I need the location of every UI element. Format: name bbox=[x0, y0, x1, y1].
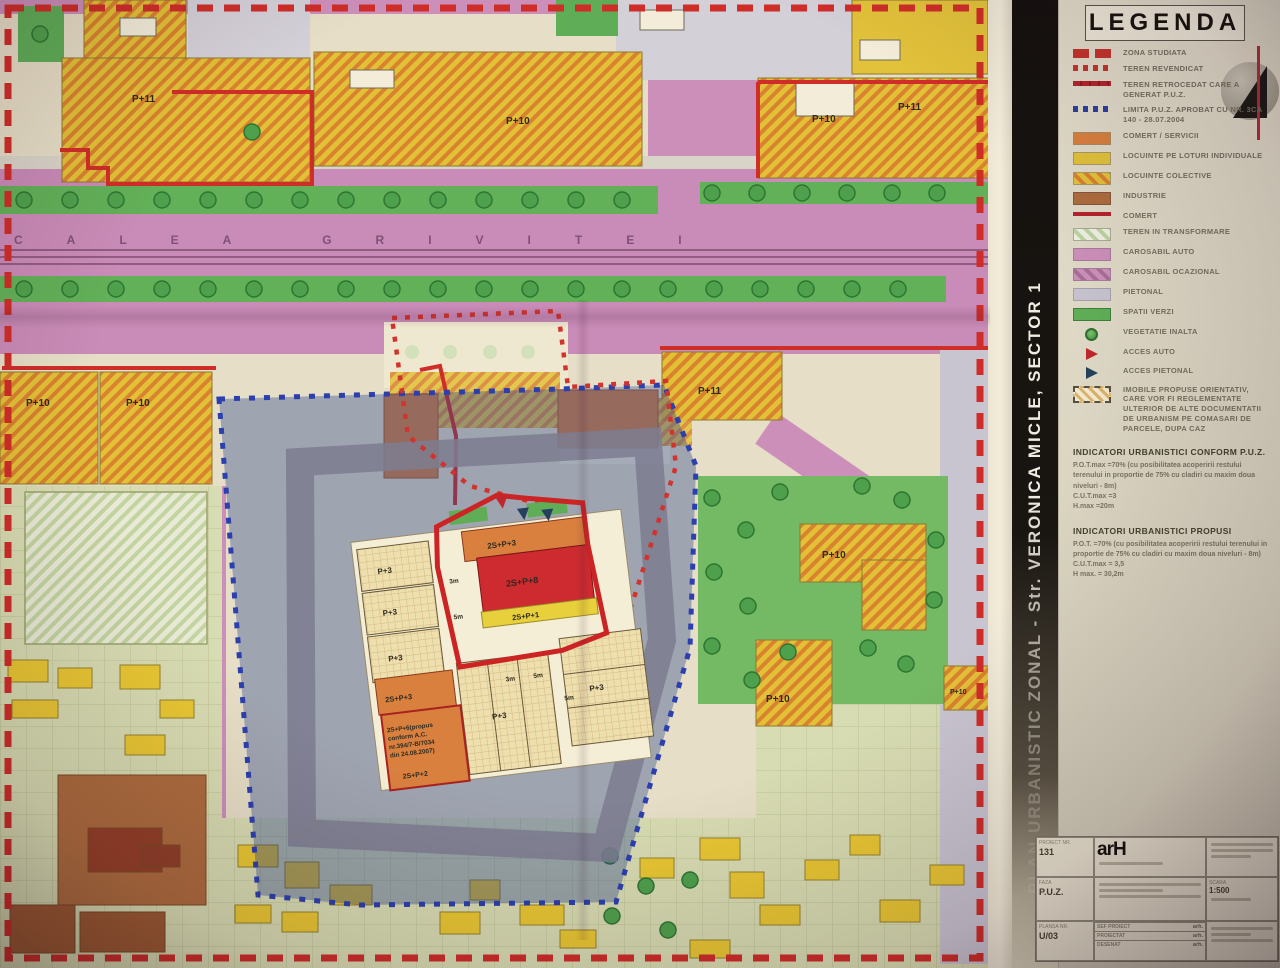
role-label: SEF PROIECT bbox=[1097, 924, 1130, 930]
building-annotation: 2S+P+6(propus conform A.C. nr.394/7-B/70… bbox=[387, 722, 439, 760]
legend-item-locuinte-colective: LOCUINTE COLECTIVE bbox=[1073, 171, 1269, 185]
legend-label: VEGETATIE INALTA bbox=[1123, 327, 1198, 337]
indicator-line: P.O.T.max =70% (cu posibilitatea acoperi… bbox=[1073, 461, 1269, 491]
indicator-line: H max. = 30,2m bbox=[1073, 570, 1269, 580]
role-label: PROIECTAT bbox=[1097, 933, 1125, 939]
indicators-existing-heading: INDICATORI URBANISTICI CONFORM P.U.Z. bbox=[1073, 447, 1269, 457]
swatch-teren-transformare-icon bbox=[1073, 228, 1113, 241]
legend-label: TEREN RETROCEDAT CARE A GENERAT P.U.Z. bbox=[1123, 80, 1269, 100]
swatch-imobile-propuse-icon bbox=[1073, 386, 1113, 403]
svg-text:P+10: P+10 bbox=[126, 398, 150, 409]
illegible-text bbox=[1211, 855, 1251, 858]
legend-items: ZONA STUDIATA TEREN REVENDICAT TEREN RET… bbox=[1073, 48, 1269, 581]
illegible-text bbox=[1099, 883, 1201, 886]
svg-text:P+10: P+10 bbox=[812, 114, 836, 125]
swatch-industrie-icon bbox=[1073, 192, 1113, 205]
legend-item-teren-transformare: TEREN IN TRANSFORMARE bbox=[1073, 227, 1269, 241]
legend-label: LOCUINTE COLECTIVE bbox=[1123, 171, 1212, 181]
firm-info-cell bbox=[1206, 837, 1278, 877]
role-name: arh. bbox=[1193, 924, 1203, 930]
swatch-spatii-verzi-icon bbox=[1073, 308, 1113, 321]
legend-item-comert: COMERT bbox=[1073, 211, 1269, 221]
legend-label: LIMITA P.U.Z. APROBAT CU NR. 3CA 140 - 2… bbox=[1123, 105, 1269, 125]
dimension-label: 5m bbox=[453, 613, 463, 621]
legend-item-carosabil-ocazional: CAROSABIL OCAZIONAL bbox=[1073, 267, 1269, 281]
plan-title: PLAN URBANISTIC ZONAL - Str. VERONICA MI… bbox=[1012, 0, 1058, 900]
role-name: arh. bbox=[1193, 942, 1203, 948]
zone-teren-in-transformare bbox=[25, 492, 207, 644]
paper-fold-strip bbox=[988, 0, 1012, 968]
indicators-proposed-heading: INDICATORI URBANISTICI PROPUSI bbox=[1073, 526, 1269, 536]
swatch-zona-studiata-icon bbox=[1073, 49, 1113, 58]
indicator-line: C.U.T.max = 3,5 bbox=[1073, 560, 1269, 570]
signature-row: DESENAT arh. bbox=[1095, 940, 1205, 949]
swatch-comert-servicii-icon bbox=[1073, 132, 1113, 145]
svg-text:P+10: P+10 bbox=[950, 689, 967, 696]
illegible-text bbox=[1211, 898, 1251, 901]
sheet-number-label: PLANSA NR. bbox=[1039, 924, 1091, 930]
signature-row: PROIECTAT arh. bbox=[1095, 931, 1205, 940]
street-name-label: CALEA GRIVITEI bbox=[14, 233, 726, 247]
signature-rows: SEF PROIECT arh. PROIECTAT arh. DESENAT … bbox=[1094, 921, 1206, 961]
illegible-text bbox=[1211, 843, 1273, 846]
sheet-number-cell: PLANSA NR. U/03 bbox=[1036, 921, 1094, 961]
legend-panel: LEGENDA ZONA STUDIATA TEREN REVENDICAT T… bbox=[1058, 0, 1280, 968]
legend-label: TEREN IN TRANSFORMARE bbox=[1123, 227, 1230, 237]
swatch-carosabil-ocazional-icon bbox=[1073, 268, 1113, 281]
scanned-urban-plan-photo: CALEA GRIVITEI bbox=[0, 0, 1280, 968]
parcel-label: P+3 bbox=[492, 711, 508, 722]
parcel-label: P+3 bbox=[589, 683, 605, 694]
legend-label: PIETONAL bbox=[1123, 287, 1163, 297]
swatch-teren-retrocedat-icon bbox=[1073, 81, 1113, 86]
legend-label: CAROSABIL AUTO bbox=[1123, 247, 1195, 257]
legend-item-comert-servicii: COMERT / SERVICII bbox=[1073, 131, 1269, 145]
parcel-label: P+3 bbox=[377, 566, 393, 577]
legend-item-zona-studiata: ZONA STUDIATA bbox=[1073, 48, 1269, 58]
indicator-line: P.O.T. =70% (cu posibilitatea acoperirii… bbox=[1073, 540, 1269, 560]
phase-label: FAZA bbox=[1039, 880, 1091, 886]
legend-label: ZONA STUDIATA bbox=[1123, 48, 1187, 58]
legend-item-carosabil-auto: CAROSABIL AUTO bbox=[1073, 247, 1269, 261]
firm-logo: arH bbox=[1097, 839, 1126, 860]
svg-text:P+10: P+10 bbox=[26, 398, 50, 409]
legend-label: IMOBILE PROPUSE ORIENTATIV, CARE VOR FI … bbox=[1123, 385, 1269, 434]
signature-row: SEF PROIECT arh. bbox=[1095, 922, 1205, 931]
svg-text:P+10: P+10 bbox=[506, 116, 530, 127]
legend-label: ACCES AUTO bbox=[1123, 347, 1175, 357]
map-drawing: CALEA GRIVITEI bbox=[0, 0, 990, 968]
legend-label: ACCES PIETONAL bbox=[1123, 366, 1193, 376]
swatch-teren-revendicat-icon bbox=[1073, 65, 1113, 71]
legend-item-locuinte-loturi: LOCUINTE PE LOTURI INDIVIDUALE bbox=[1073, 151, 1269, 165]
legend-label: LOCUINTE PE LOTURI INDIVIDUALE bbox=[1123, 151, 1262, 161]
sheet-number-value: U/03 bbox=[1039, 931, 1091, 941]
role-name: arh. bbox=[1193, 933, 1203, 939]
legend-item-teren-retrocedat: TEREN RETROCEDAT CARE A GENERAT P.U.Z. bbox=[1073, 80, 1269, 100]
swatch-comert-icon bbox=[1073, 212, 1113, 216]
legend-title: LEGENDA bbox=[1085, 5, 1245, 41]
indicator-line: H.max =20m bbox=[1073, 502, 1269, 512]
scale-value: 1:500 bbox=[1209, 886, 1275, 895]
legend-label: INDUSTRIE bbox=[1123, 191, 1166, 201]
svg-text:P+11: P+11 bbox=[898, 102, 922, 113]
swatch-locuinte-loturi-icon bbox=[1073, 152, 1113, 165]
illegible-text bbox=[1211, 849, 1273, 852]
phase-value: P.U.Z. bbox=[1039, 887, 1091, 897]
legend-item-imobile-propuse: IMOBILE PROPUSE ORIENTATIV, CARE VOR FI … bbox=[1073, 385, 1269, 434]
legend-item-vegetatie-inalta: VEGETATIE INALTA bbox=[1073, 327, 1269, 341]
legend-item-pietonal: PIETONAL bbox=[1073, 287, 1269, 301]
dimension-label: 3m bbox=[449, 578, 459, 586]
legend-item-acces-auto: ACCES AUTO bbox=[1073, 347, 1269, 360]
svg-text:P+10: P+10 bbox=[822, 550, 846, 561]
legend-label: COMERT bbox=[1123, 211, 1157, 221]
dimension-label: 5m bbox=[564, 694, 574, 702]
scale-cell: SCARA 1:500 bbox=[1206, 877, 1278, 921]
acces-pietonal-arrow-icon bbox=[1073, 367, 1113, 379]
project-number-value: 131 bbox=[1039, 847, 1091, 857]
swatch-limita-puz-icon bbox=[1073, 106, 1113, 112]
legend-label: CAROSABIL OCAZIONAL bbox=[1123, 267, 1220, 277]
acces-auto-arrow-icon bbox=[1073, 348, 1113, 360]
legend-item-teren-revendicat: TEREN REVENDICAT bbox=[1073, 64, 1269, 74]
illegible-text bbox=[1099, 889, 1163, 892]
legend-label: SPATII VERZI bbox=[1123, 307, 1174, 317]
dimension-label: 5m bbox=[533, 672, 543, 680]
parcel-label: P+3 bbox=[382, 607, 398, 618]
illegible-text bbox=[1099, 895, 1201, 898]
swatch-carosabil-auto-icon bbox=[1073, 248, 1113, 261]
indicator-line: C.U.T.max =3 bbox=[1073, 492, 1269, 502]
sheet-title-cell bbox=[1206, 921, 1278, 961]
tree-icon bbox=[1073, 328, 1113, 341]
swatch-locuinte-colective-icon bbox=[1073, 172, 1113, 185]
parcel-label: P+3 bbox=[388, 653, 404, 664]
illegible-text bbox=[1211, 933, 1251, 936]
legend-item-spatii-verzi: SPATII VERZI bbox=[1073, 307, 1269, 321]
illegible-text bbox=[1099, 862, 1163, 865]
plan-title-bar: PLAN URBANISTIC ZONAL - Str. VERONICA MI… bbox=[1012, 0, 1058, 968]
legend-item-acces-pietonal: ACCES PIETONAL bbox=[1073, 366, 1269, 379]
svg-text:P+10: P+10 bbox=[766, 694, 790, 705]
swatch-pietonal-icon bbox=[1073, 288, 1113, 301]
map-canvas: CALEA GRIVITEI bbox=[0, 0, 990, 968]
illegible-text bbox=[1211, 939, 1273, 942]
role-label: DESENAT bbox=[1097, 942, 1121, 948]
legend-label: TEREN REVENDICAT bbox=[1123, 64, 1204, 74]
dimension-label: 3m bbox=[505, 675, 515, 683]
logo-cell: arH bbox=[1094, 837, 1206, 877]
illegible-text bbox=[1211, 927, 1273, 930]
legend-item-limita-puz: LIMITA P.U.Z. APROBAT CU NR. 3CA 140 - 2… bbox=[1073, 105, 1269, 125]
svg-text:P+11: P+11 bbox=[132, 94, 156, 105]
svg-text:P+11: P+11 bbox=[698, 386, 722, 397]
beneficiary-cell bbox=[1094, 877, 1206, 921]
project-number-cell: PROIECT NR. 131 bbox=[1036, 837, 1094, 877]
phase-cell: FAZA P.U.Z. bbox=[1036, 877, 1094, 921]
legend-label: COMERT / SERVICII bbox=[1123, 131, 1199, 141]
project-number-label: PROIECT NR. bbox=[1039, 840, 1091, 846]
legend-item-industrie: INDUSTRIE bbox=[1073, 191, 1269, 205]
title-block: PROIECT NR. 131 arH FAZA P.U.Z. bbox=[1035, 836, 1279, 962]
